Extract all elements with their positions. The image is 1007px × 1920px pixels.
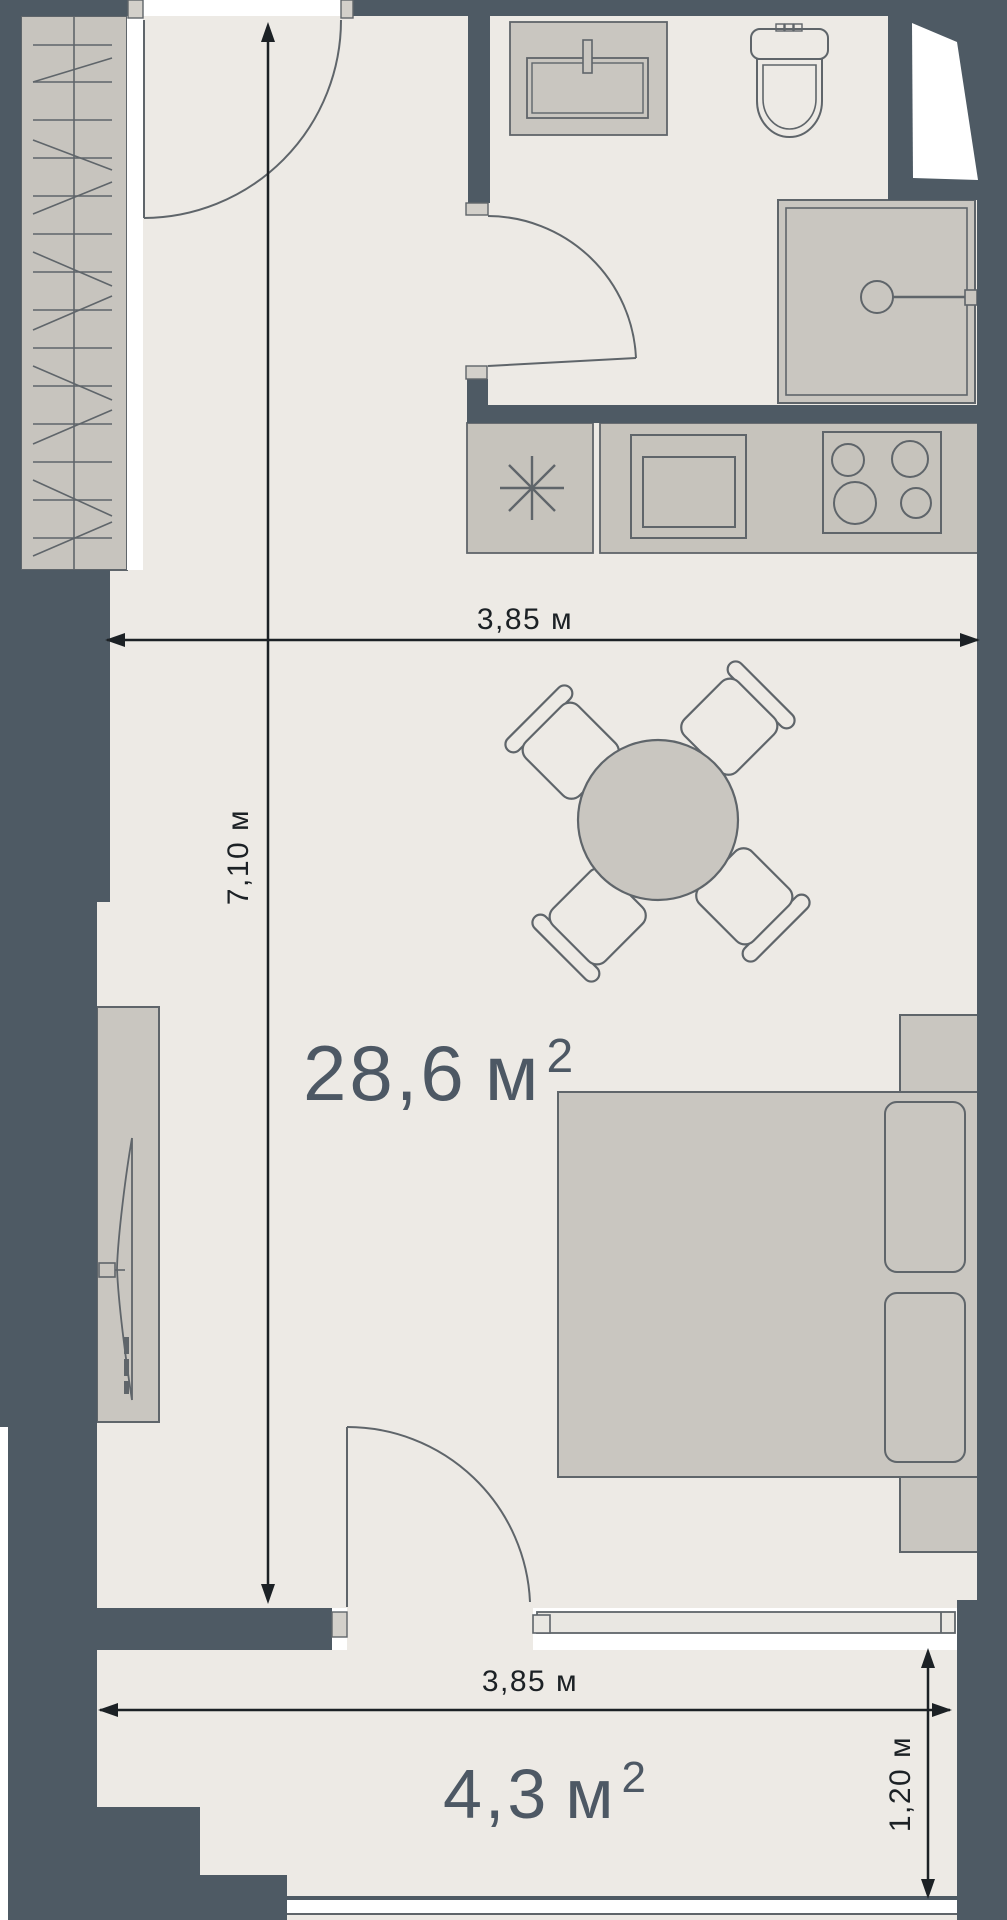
wall-step-e <box>8 1807 200 1875</box>
sink-tap <box>583 40 592 73</box>
wall-left-b <box>0 570 110 902</box>
wall-bath-divider <box>468 13 490 203</box>
balcony-depth-label: 1,20 м <box>884 1736 917 1832</box>
floor-plan: 3,85 м 7,10 м 3,85 м 1,20 м 28,6м2 4,3м2 <box>0 0 1007 1920</box>
balcony-glazing <box>287 1900 957 1920</box>
bed <box>558 1015 982 1552</box>
dining-table <box>578 740 738 900</box>
main-width-label: 3,85 м <box>477 603 573 636</box>
balcony-width-label: 3,85 м <box>482 1665 578 1698</box>
kitchen-counter <box>467 423 980 553</box>
shower <box>778 200 977 403</box>
floor-plan-page: 3,85 м 7,10 м 3,85 м 1,20 м 28,6м2 4,3м2 <box>0 0 1007 1920</box>
tv-console <box>97 1007 159 1422</box>
nightstand <box>900 1474 982 1552</box>
balcony-glazing-top-line <box>287 1896 957 1900</box>
wall-bath-stub <box>467 379 488 409</box>
wardrobe <box>21 16 127 570</box>
main-room-window <box>533 1608 957 1650</box>
wall-balcony-right <box>957 1600 1007 1920</box>
wall-left-d <box>8 1427 97 1807</box>
mattress <box>558 1092 982 1477</box>
wardrobe-gap <box>127 16 143 570</box>
nightstand <box>900 1015 982 1092</box>
bathroom-sink <box>510 22 667 135</box>
wall-step-f <box>8 1875 287 1920</box>
wall-bottom-main <box>97 1608 332 1650</box>
door-threshold-floor <box>347 1608 533 1650</box>
wall-left-a <box>0 16 21 570</box>
main-room-area: 28,6м2 <box>303 1029 576 1117</box>
washer-place-asterisk-icon <box>500 456 564 520</box>
entrance-opening <box>143 0 341 16</box>
main-height-label: 7,10 м <box>222 809 255 905</box>
wall-kitchen-band <box>467 405 980 423</box>
wall-left-c <box>0 902 97 1427</box>
wall-right <box>977 180 1007 1608</box>
